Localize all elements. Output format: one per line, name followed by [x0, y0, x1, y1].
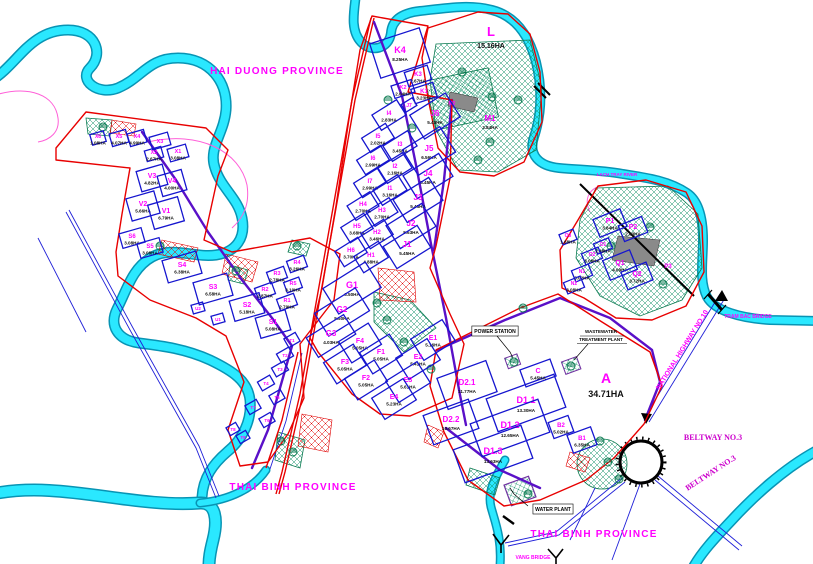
parcel-area-label: 6.35HA	[574, 443, 590, 448]
parcel-id-label: T5	[274, 395, 280, 400]
parcel-area-label: 3.10HA	[285, 288, 301, 293]
parcel-x1: X13.08HA	[167, 144, 189, 162]
parcel-id-label: I6	[370, 156, 376, 162]
parcel-t1: T1	[284, 332, 300, 347]
parcel-area-label: 4.07HA	[111, 141, 127, 146]
parcel-p3: P3	[664, 264, 672, 270]
parcel-id-label: K1	[420, 89, 428, 95]
parcel-u1: U1	[211, 313, 225, 325]
parcel-id-label: H1	[367, 253, 375, 259]
parcel-r5: R53.10HA	[284, 277, 303, 293]
landmark-label: WASTEWATER	[585, 329, 618, 334]
parcel-id-label: V1	[162, 208, 171, 215]
parcel-id-label: H2	[373, 230, 381, 236]
parcel-area-label: 3.08HA	[170, 156, 186, 161]
parcel-id-label: S2	[243, 302, 252, 309]
parcel-id-label: G3	[326, 329, 337, 338]
parcel-area-label: 2.83HA	[381, 118, 397, 123]
parcel-id-label: T9	[240, 435, 246, 440]
parcel-id-label: V3	[148, 173, 157, 180]
parcel-id-label: I2	[392, 164, 398, 170]
river-top-left	[0, 30, 250, 497]
parcel-id-label: I1	[387, 186, 393, 192]
parcel-r4: R43.26HA	[286, 255, 307, 272]
parcel-area-label: 3.23HA	[416, 96, 432, 101]
parcel-area-label: 1.68HA	[560, 240, 576, 245]
parcel-r2: R22.87HA	[254, 282, 275, 299]
parcel-id-label: R1	[283, 298, 290, 304]
parcel-id-label: J7	[406, 103, 412, 109]
parcel-id-label: D2.1	[459, 378, 476, 387]
landmark-label: LACH TRAY RIVER	[597, 172, 638, 177]
parcel-id-label: K3	[414, 72, 422, 78]
parcel-id-label: A	[601, 370, 611, 386]
parcel-id-label: E1	[429, 335, 438, 342]
parcel-id-label: E2	[414, 354, 423, 361]
parcel-id-label: T1	[289, 338, 295, 343]
parcel-id-label: B2	[557, 423, 565, 429]
parcel-id-label: S5	[146, 244, 154, 250]
parcel-id-label: S4	[178, 262, 187, 269]
parcel-area-label: 3.72HA	[629, 279, 645, 284]
parcel-area-label: 5.05HA	[373, 357, 389, 362]
landmark-beltway-3-south: BELTWAY NO.3	[684, 453, 738, 492]
beltway-3-road-southeast	[658, 476, 742, 546]
parcel-area-label: 2.04HA	[395, 92, 411, 97]
parcel-id-label: S1	[269, 319, 278, 326]
province-label-thai-binh-south: THAI BINH PROVINCE	[530, 529, 657, 540]
landmark-power-station: POWER STATION	[472, 326, 518, 336]
landmark-tram-bac-bridge: TRAM BAC BRIDGE	[724, 314, 772, 320]
parcel-area-label: 2.83HA	[625, 232, 641, 237]
parcel-id-label: K2	[399, 85, 406, 91]
parcel-area-label: 3.46HA	[369, 237, 385, 242]
landmark-vang-bridge: VANG BRIDGE	[516, 555, 552, 561]
parcel-id-label: H6	[347, 248, 355, 254]
landmark-label: TRAM BAC BRIDGE	[724, 314, 772, 320]
parcel-id-label: J1	[403, 240, 412, 249]
parcel-id-label: E4	[390, 394, 399, 401]
parcel-id-label: I7	[367, 179, 373, 185]
parcel-id-label: O1	[600, 242, 607, 248]
parcel-id-label: T6	[264, 418, 270, 423]
parcel-id-label: L	[487, 24, 495, 39]
parcel-id-label: T3	[277, 367, 283, 372]
parcel-area-label: 6.38HA	[174, 270, 190, 275]
parcel-id-label: R4	[293, 260, 301, 266]
parcel-id-label: X6	[95, 134, 101, 140]
parcel-area-label: 5.18HA	[239, 310, 255, 315]
parcel-id-label: G2	[337, 305, 348, 314]
parcel-id-label: K4	[394, 45, 406, 55]
parcel-a: A34.71HA	[588, 370, 624, 399]
parcel-id-label: X3	[157, 139, 164, 145]
parcel-id-label: T7	[250, 405, 256, 410]
parcel-o3: O31.68HA	[559, 229, 577, 245]
parcel-area-label: 5.05HA	[337, 367, 353, 372]
parcel-x2: X22.67HA	[144, 146, 163, 161]
landmark-wastewater-2: TREATMENT PLANT	[579, 337, 623, 342]
parcel-t5: T5	[269, 389, 285, 404]
parcel-id-label: R2	[261, 287, 268, 293]
parcel-area-label: 10.67HA	[442, 426, 461, 431]
parcel-id-label: I3	[397, 142, 403, 148]
parcel-area-label: 4.03HA	[323, 340, 339, 345]
landmark-label: POWER STATION	[474, 329, 516, 335]
parcel-area-label: 2.79HA	[279, 305, 295, 310]
landmark-water-plant: WATER PLANT	[533, 504, 573, 514]
parcel-id-label: M1	[484, 114, 496, 123]
parcel-id-label: F4	[356, 338, 364, 345]
landmark-label: NATIONAL HIGHWAY NO.10	[655, 309, 710, 391]
parcel-id-label: X5	[116, 134, 123, 140]
parcel-id-label: H5	[353, 224, 361, 230]
parcel-area-label: 5.05HA	[358, 383, 374, 388]
parcel-area-label: 5.08HA	[265, 327, 281, 332]
parcel-l: L15.16HA	[477, 24, 505, 50]
landmark-beltway-3-east: BELTWAY NO.3	[684, 433, 742, 442]
landmark-label: BELTWAY NO.3	[684, 433, 742, 442]
parcel-id-label: F3	[341, 359, 349, 366]
parcel-id-label: T4	[263, 381, 269, 386]
parcel-area-label: 13.63HA	[484, 459, 503, 464]
landmark-lach-tray-river: LACH TRAY RIVER	[597, 172, 638, 177]
parcel-area-label: 11.77HA	[458, 389, 477, 394]
parcel-area-label: 5.02HA	[553, 430, 569, 435]
parcel-area-label: 3.84HA	[482, 125, 498, 130]
parcel-id-label: I5	[375, 134, 381, 140]
parcel-id-label: T2	[282, 353, 288, 358]
parcel-id-label: N2	[571, 281, 578, 287]
parcel-id-label: U2	[195, 306, 201, 311]
parcel-area-label: 5.23HA	[386, 402, 402, 407]
parcel-id-label: P3	[664, 264, 672, 270]
parcel-r3: R32.78HA	[266, 266, 287, 283]
landmark-wastewater-1: WASTEWATER	[585, 329, 618, 334]
parcel-id-label: H4	[359, 202, 367, 208]
landmark-label: BELTWAY NO.3	[684, 453, 738, 492]
parcel-id-label: X4	[134, 134, 142, 140]
parcel-id-label: X1	[175, 149, 182, 155]
parcel-id-label: P2	[629, 224, 638, 231]
parcel-area-label: 1.08HA	[90, 141, 106, 146]
parcel-id-label: R5	[289, 281, 296, 287]
parcel-id-label: S6	[128, 234, 136, 240]
parcel-id-label: H3	[378, 208, 386, 214]
parcel-area-label: 2.70HA	[374, 215, 390, 220]
industrial-zone-master-plan-map: L15.16HAK48.25HAK32.67HAK22.04HAK13.23HA…	[0, 0, 813, 564]
parcel-id-label: F1	[377, 349, 385, 356]
parcel-id-label: Q1	[615, 260, 624, 267]
parcel-id-label: S3	[209, 284, 218, 291]
parcel-id-label: I4	[386, 111, 392, 117]
parcel-id-label: N1	[579, 269, 586, 275]
parcel-id-label: V2	[139, 201, 148, 208]
parcel-s3: S36.58HA	[193, 273, 233, 305]
parcel-area-label: 3.08HA	[584, 259, 600, 264]
province-label-thai-binh-west: THAI BINH PROVINCE	[229, 482, 356, 493]
landmark-label: VANG BRIDGE	[516, 555, 552, 561]
parcel-id-label: B1	[578, 436, 586, 442]
parcel-area-label: 3.08HA	[142, 251, 158, 256]
wastewater-plant-site	[561, 357, 580, 375]
parcel-id-label: D1.3	[483, 446, 502, 456]
parcel-id-label: F2	[362, 375, 370, 382]
landmark-label: TREATMENT PLANT	[579, 337, 623, 342]
parcel-area-label: 3.26HA	[289, 267, 305, 272]
parcel-id-label: O2	[589, 252, 596, 258]
parcel-u2: U2	[191, 302, 205, 314]
parcel-id-label: O3	[565, 233, 572, 239]
parcel-id-label: J5	[425, 144, 434, 153]
parcel-area-label: 4.99HA	[129, 141, 145, 146]
parcel-area-label: 8.25HA	[392, 57, 408, 62]
parcel-area-label: 6.58HA	[205, 292, 221, 297]
parcel-n2: N23.08HA	[563, 276, 584, 294]
parcel-area-label: 5.45HA	[530, 376, 546, 381]
parcel-area-label: 4.00HA	[164, 186, 180, 191]
parcel-area-label: 6.79HA	[158, 216, 174, 221]
parcel-area-label: 2.67HA	[146, 157, 162, 162]
province-label-hai-duong: HAI DUONG PROVINCE	[210, 66, 344, 77]
parcel-area-label: 2.16HA	[387, 171, 403, 176]
parcel-area-label: 34.71HA	[588, 389, 624, 399]
highway-arrowhead-north	[715, 290, 728, 301]
parcel-id-label: C	[535, 368, 540, 375]
parcel-id-label: J3	[414, 193, 423, 202]
parcel-id-label: J4	[424, 169, 433, 178]
parcel-area-label: 2.87HA	[257, 294, 273, 299]
parcel-t4: T4	[257, 375, 274, 391]
parcel-r1: R12.79HA	[276, 293, 297, 310]
parcel-id-label: R3	[273, 271, 280, 277]
landmark-label: WATER PLANT	[535, 507, 571, 513]
map-canvas: L15.16HAK48.25HAK32.67HAK22.04HAK13.23HA…	[0, 0, 813, 564]
bridge-icon-south	[503, 516, 514, 524]
parcel-id-label: Q2	[632, 271, 641, 278]
parcel-area-label: 5.43HA	[427, 120, 443, 125]
parcel-id-label: U1	[215, 317, 221, 322]
tree-icon	[408, 124, 416, 132]
parcel-area-label: 15.16HA	[477, 43, 505, 50]
landmark-national-highway-10: NATIONAL HIGHWAY NO.10	[655, 309, 710, 391]
parcel-id-label: P1	[606, 218, 615, 225]
parcel-id-label: J6	[431, 109, 440, 118]
parcel-area-label: 3.84HA	[602, 226, 618, 231]
parcel-area-label: 3.08HA	[566, 288, 582, 293]
parcel-id-label: D2.2	[443, 415, 460, 424]
parcel-id-label: T8	[230, 427, 236, 432]
parcel-area-label: 3.16HA	[382, 193, 398, 198]
tree-icon	[519, 304, 527, 312]
parcel-area-label: 5.45HA	[399, 251, 415, 256]
parcel-id-label: V4	[168, 178, 177, 185]
parcel-id-label: X2	[151, 150, 158, 156]
